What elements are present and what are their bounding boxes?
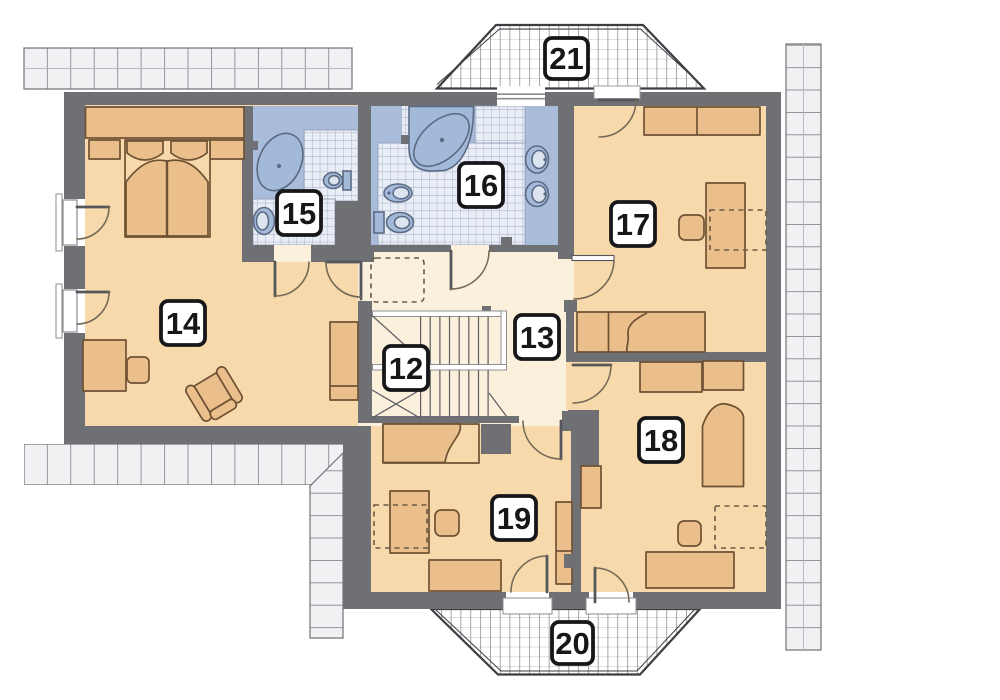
svg-text:21: 21: [549, 41, 583, 76]
svg-text:20: 20: [555, 626, 589, 661]
svg-text:17: 17: [616, 207, 650, 242]
svg-text:12: 12: [389, 351, 423, 386]
svg-text:19: 19: [497, 501, 531, 536]
svg-text:15: 15: [282, 196, 316, 231]
svg-text:14: 14: [166, 306, 201, 341]
svg-text:13: 13: [520, 320, 554, 355]
svg-text:18: 18: [644, 423, 678, 458]
svg-text:16: 16: [464, 168, 498, 203]
